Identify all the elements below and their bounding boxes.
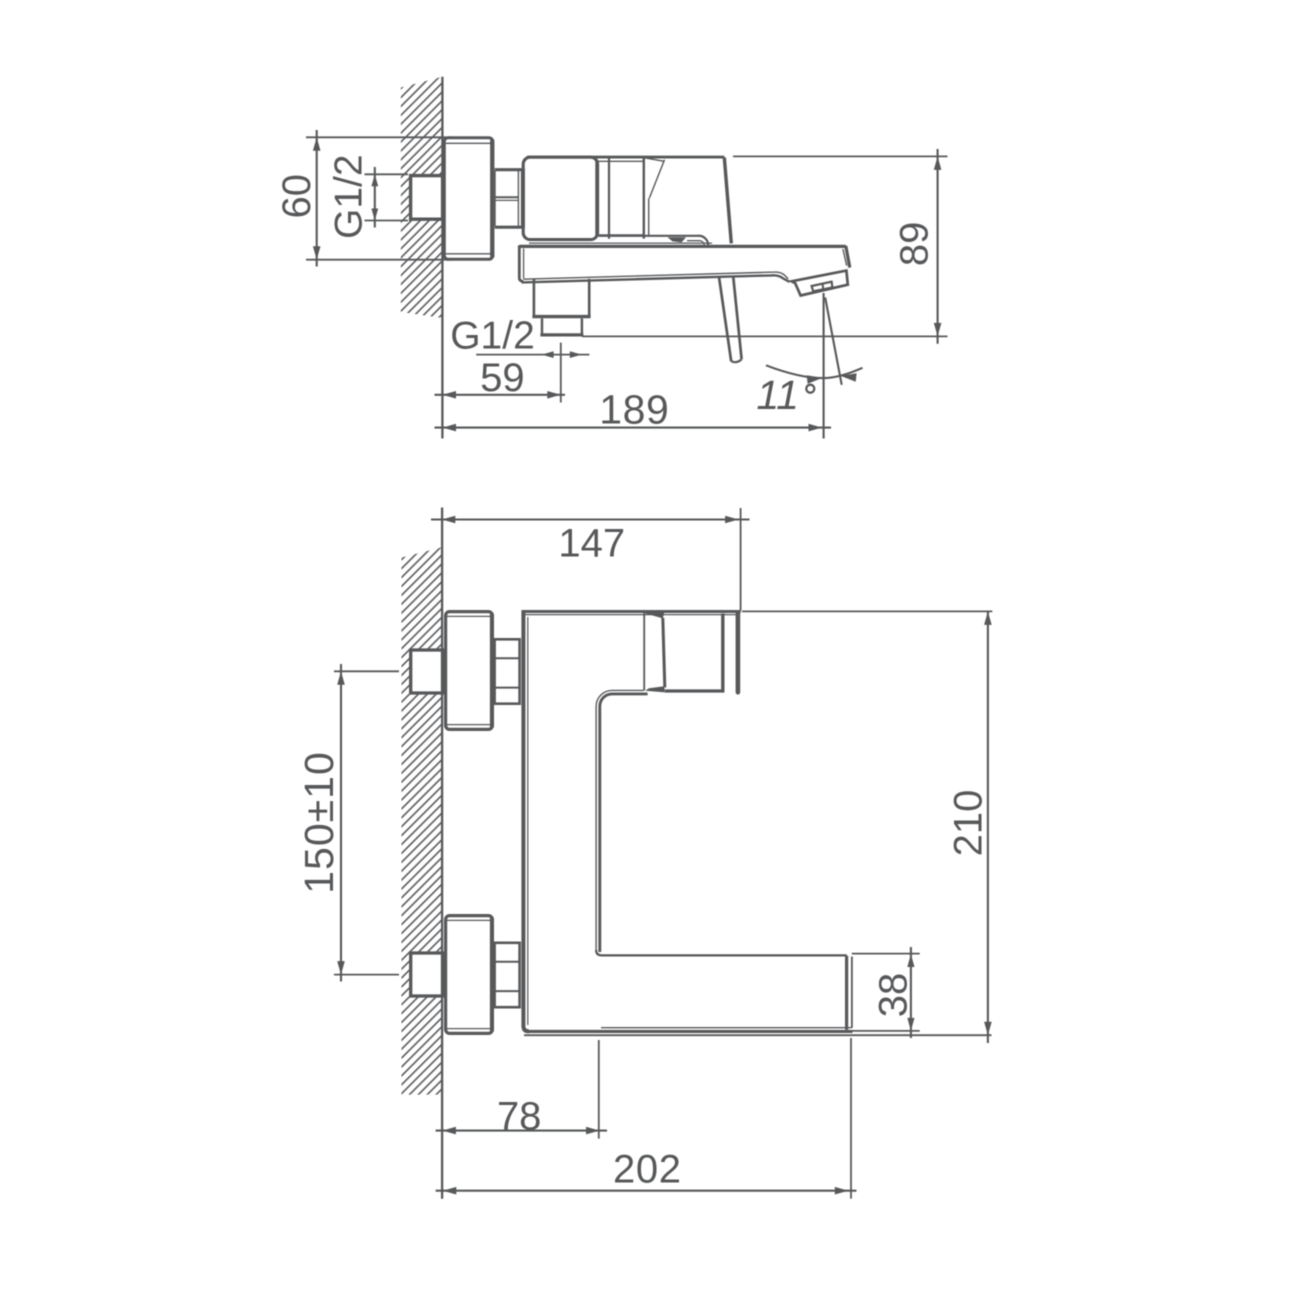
svg-text:78: 78: [497, 1094, 542, 1138]
svg-text:60: 60: [275, 174, 319, 219]
svg-text:147: 147: [558, 521, 625, 565]
svg-text:189: 189: [599, 386, 669, 432]
svg-text:G1/2: G1/2: [328, 154, 371, 239]
svg-text:59: 59: [480, 356, 525, 400]
svg-text:150±10: 150±10: [296, 751, 342, 894]
svg-text:202: 202: [613, 1147, 682, 1191]
svg-text:11: 11: [756, 372, 799, 418]
svg-text:G1/2: G1/2: [450, 315, 535, 358]
svg-text:210: 210: [947, 790, 991, 857]
svg-text:89: 89: [893, 222, 937, 267]
svg-text:38: 38: [872, 973, 916, 1018]
